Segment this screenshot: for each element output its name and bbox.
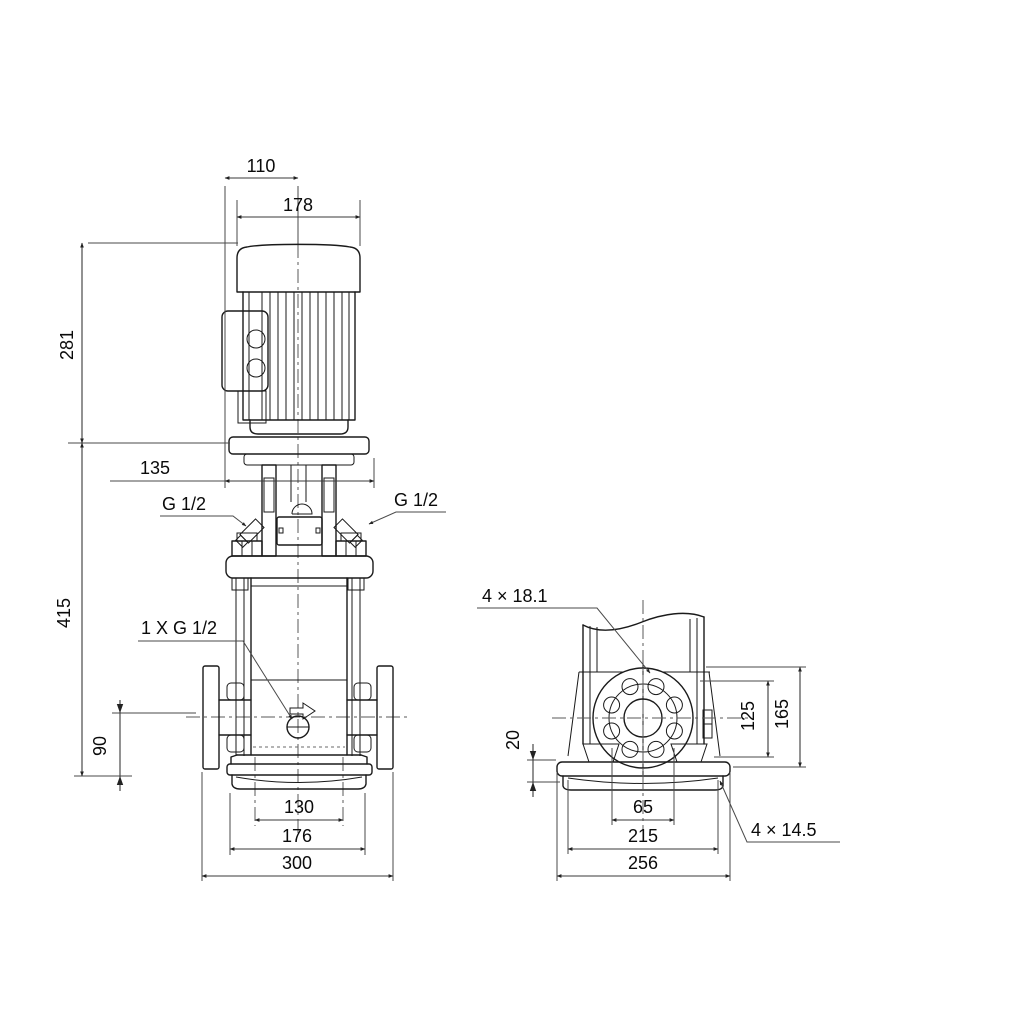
- dim-415-label: 415: [54, 598, 74, 628]
- dim-125-label: 125: [738, 701, 758, 731]
- dim-90-label: 90: [90, 736, 110, 756]
- dim-281: 281: [57, 243, 238, 443]
- shaft-dome: [292, 504, 312, 514]
- callout-vent-left: G 1/2: [160, 494, 246, 526]
- dim-130-label: 130: [284, 797, 314, 817]
- dim-20: 20: [503, 730, 560, 797]
- motor-stool: [232, 465, 366, 556]
- callout-drain: 1 X G 1/2: [138, 618, 292, 719]
- dim-215: 215: [568, 780, 718, 854]
- motor-end-shield: [250, 420, 348, 434]
- dim-90: 90: [90, 700, 196, 791]
- dim-256-label: 256: [628, 853, 658, 873]
- front-view: 110 178 281 415 135 G 1/2: [54, 156, 446, 881]
- dim-125: 125: [700, 681, 774, 757]
- drawing-canvas: 110 178 281 415 135 G 1/2: [0, 0, 1024, 1024]
- dim-178-label: 178: [283, 195, 313, 215]
- dim-176-label: 176: [282, 826, 312, 846]
- vent-right-label: G 1/2: [394, 490, 438, 510]
- drain-plug: [287, 703, 315, 738]
- dim-281-label: 281: [57, 330, 77, 360]
- staybolt-nut-right: [336, 533, 366, 556]
- flange-holes-label: 4 × 18.1: [482, 586, 548, 606]
- staybolt-nut-left: [232, 533, 262, 556]
- dim-20-label: 20: [503, 730, 523, 750]
- side-view: 4 × 18.1 125 165 20 65: [477, 586, 840, 881]
- pump-base-front: [227, 755, 372, 789]
- base-holes-label: 4 × 14.5: [751, 820, 817, 840]
- pump-head-flange: [226, 556, 373, 578]
- dim-110-label: 110: [247, 156, 276, 176]
- motor: [222, 244, 369, 465]
- dim-130: 130: [255, 797, 343, 820]
- dim-135-label: 135: [140, 458, 170, 478]
- dim-300-label: 300: [282, 853, 312, 873]
- pump-dimensional-drawing: 110 178 281 415 135 G 1/2: [0, 0, 1024, 1024]
- dim-215-label: 215: [628, 826, 658, 846]
- vent-left-label: G 1/2: [162, 494, 206, 514]
- coupling-guard: [277, 517, 322, 545]
- callout-vent-right: G 1/2: [369, 490, 446, 524]
- callout-flange-holes: 4 × 18.1: [477, 586, 650, 673]
- dim-65-label: 65: [633, 797, 653, 817]
- dim-165-label: 165: [772, 699, 792, 729]
- motor-flange: [229, 437, 369, 454]
- drain-label: 1 X G 1/2: [141, 618, 217, 638]
- callout-base-holes: 4 × 14.5: [720, 781, 840, 842]
- chamber-sleeve: [251, 578, 347, 755]
- terminal-box: [222, 311, 268, 423]
